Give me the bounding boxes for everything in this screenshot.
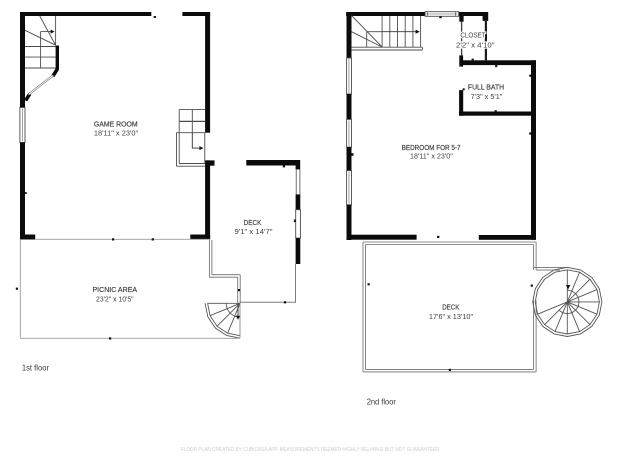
svg-text:FULL BATH: FULL BATH [468,83,504,92]
svg-text:BEDROOM FOR 5-7: BEDROOM FOR 5-7 [402,143,461,152]
svg-text:DECK: DECK [442,303,459,312]
svg-text:DECK: DECK [244,218,262,227]
svg-text:2'2" x 4'10": 2'2" x 4'10" [456,41,495,50]
svg-text:7'3" x 5'1": 7'3" x 5'1" [471,92,503,101]
svg-text:23'2" x 10'5": 23'2" x 10'5" [96,295,134,304]
svg-text:CLOSET: CLOSET [460,31,486,40]
svg-text:9'1" x 14'7": 9'1" x 14'7" [235,227,273,236]
svg-text:1st floor: 1st floor [22,363,49,372]
svg-text:17'6" x 13'10": 17'6" x 13'10" [429,312,474,321]
svg-text:FLOOR PLAN CREATED BY CUBICASA: FLOOR PLAN CREATED BY CUBICASA APP. MEAS… [181,447,441,453]
svg-text:2nd floor: 2nd floor [367,398,397,407]
svg-text:18'11" x 23'0": 18'11" x 23'0" [410,152,453,161]
svg-text:GAME ROOM: GAME ROOM [94,120,138,129]
svg-text:18'11" x 23'0": 18'11" x 23'0" [94,129,139,138]
svg-text:PICNIC AREA: PICNIC AREA [92,285,137,294]
